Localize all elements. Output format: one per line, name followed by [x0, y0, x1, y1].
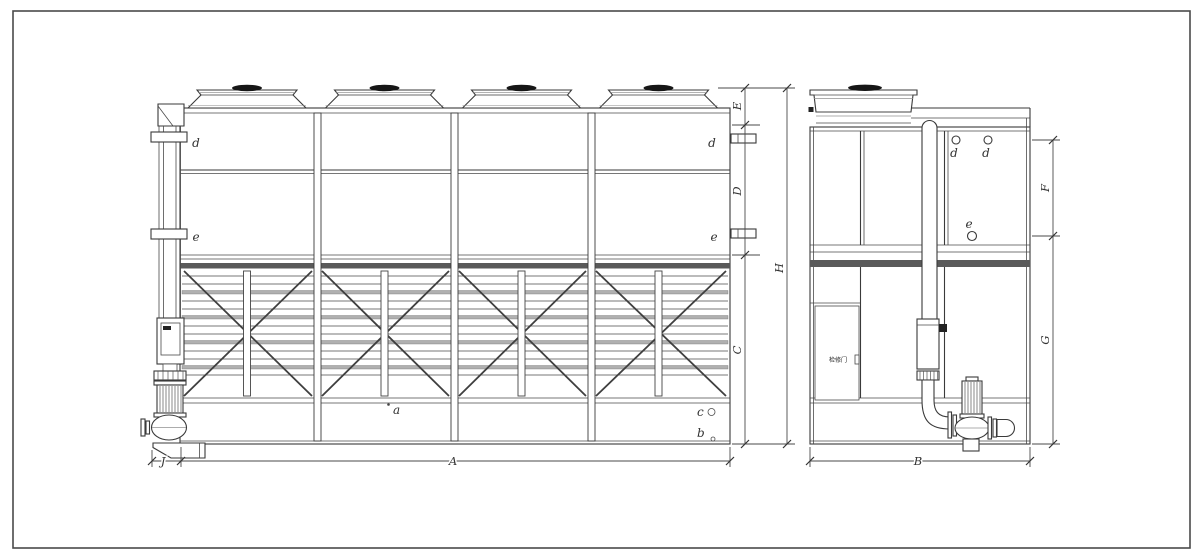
connection-label-d1: d: [950, 146, 958, 160]
fan-cowl: [600, 85, 718, 108]
connection-label-d2: d: [982, 146, 990, 160]
dim-label-B: B: [913, 454, 922, 468]
dimension-horizontal-side: B: [806, 447, 1034, 468]
access-door-label: 检修门: [829, 356, 847, 364]
deck-band: [810, 260, 1030, 267]
dimension-horizontal-front: J A: [148, 447, 734, 468]
basin-label-c: c: [697, 405, 704, 419]
panel-label-d-left: d: [192, 136, 200, 150]
pump-stand: [963, 439, 979, 451]
panel-label-e-right: e: [710, 230, 717, 244]
fan-cowl-side: [809, 85, 918, 123]
dimension-vertical-side: F G: [1032, 136, 1060, 448]
dim-label-A: A: [448, 454, 457, 468]
dim-label-E: E: [730, 101, 744, 111]
dim-label-F: F: [1038, 183, 1052, 193]
sensor-mark: [939, 324, 947, 332]
side-view: 检修门 d d e: [806, 85, 1060, 468]
discharge-cap: [997, 420, 1015, 437]
dim-label-G: G: [1038, 335, 1052, 344]
fan-cowl: [326, 85, 444, 108]
fan-cowl: [188, 85, 306, 108]
dim-label-H: H: [772, 262, 786, 274]
dim-label-C: C: [730, 345, 744, 354]
dim-label-D: D: [730, 186, 744, 196]
access-door: 检修门: [815, 306, 859, 400]
basin-label-b: b: [697, 426, 705, 440]
technical-drawing: d e d e a c b E D C H: [0, 0, 1200, 559]
panel-label-d-right: d: [708, 136, 716, 150]
fan-array: [188, 85, 718, 108]
connection-stubs: [731, 134, 756, 238]
door-handle: [855, 355, 859, 364]
basin-label-a: a: [393, 403, 400, 417]
connection-label-e: e: [965, 217, 972, 231]
drawing-sheet: d e d e a c b E D C H: [0, 0, 1200, 559]
front-view: d e d e a c b E D C H: [141, 84, 795, 468]
bolt-mark: [809, 107, 814, 112]
fan-cowl: [463, 85, 581, 108]
panel-label-e-left: e: [192, 230, 199, 244]
